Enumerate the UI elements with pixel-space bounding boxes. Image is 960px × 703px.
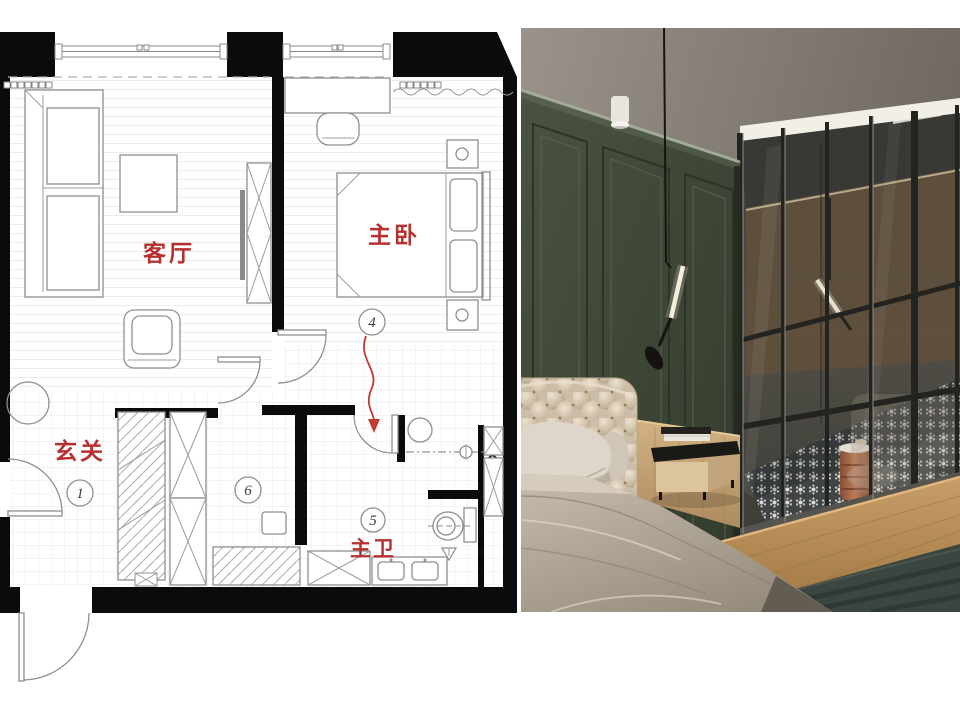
render-panel — [521, 28, 960, 612]
books — [661, 427, 711, 441]
armchair — [124, 310, 180, 368]
label-living-room: 客厅 — [143, 240, 195, 266]
coffee-table — [120, 155, 177, 212]
ceiling-spotlight — [609, 96, 631, 132]
floor-plan-panel: 客厅 主卧 玄关 主卫 1 4 5 6 — [0, 0, 520, 703]
wardrobe — [118, 412, 165, 586]
marker-closet: 6 — [244, 483, 252, 499]
render-drawing — [521, 28, 960, 612]
sofa — [25, 90, 103, 297]
marker-bedroom: 4 — [368, 315, 376, 331]
tv-screen — [240, 190, 245, 280]
windows — [8, 44, 390, 77]
marker-entrance: 1 — [76, 486, 84, 502]
label-master-bath: 主卫 — [350, 537, 396, 561]
floor-plan-drawing: 客厅 主卧 玄关 主卫 1 4 5 6 — [0, 0, 520, 703]
label-master-bedroom: 主卧 — [368, 223, 420, 248]
collage: 客厅 主卧 玄关 主卫 1 4 5 6 — [0, 0, 960, 703]
marker-bath: 5 — [369, 513, 377, 529]
label-entrance: 玄关 — [54, 438, 106, 464]
